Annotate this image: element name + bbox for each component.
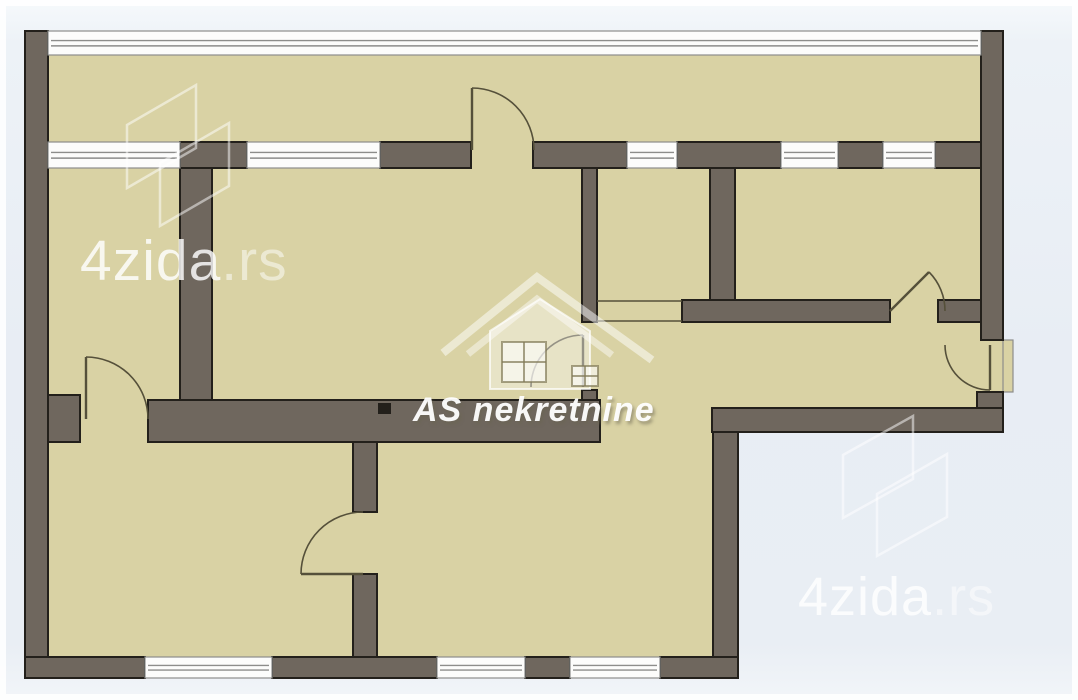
window-bottom-center-a-frame	[437, 657, 525, 678]
balcony-glazing	[48, 31, 981, 55]
wall-wing-divider-s	[353, 574, 377, 657]
window-bedroom-b	[883, 142, 935, 168]
window-living-frame	[247, 142, 380, 168]
wall-kitchen-west	[582, 168, 597, 322]
wall-hall-north-a	[682, 300, 890, 322]
balcony-glazing-frame	[48, 31, 981, 55]
window-bottom-left	[145, 657, 272, 678]
outer-wall-east	[981, 31, 1003, 340]
window-bedroom-a	[781, 142, 838, 168]
wall-wing-east	[713, 432, 738, 678]
window-living	[247, 142, 380, 168]
wall-mid-main	[148, 400, 600, 442]
wall-south-a	[25, 657, 145, 678]
floorplan-svg	[0, 0, 1078, 700]
window-bedroom-b-frame	[883, 142, 935, 168]
band-wall-b	[380, 142, 471, 168]
floorplan-image: 4zida.rs AS nekretnine 4zida.rs	[0, 0, 1078, 700]
wall-kitchen-east	[710, 168, 735, 300]
window-bottom-left-frame	[145, 657, 272, 678]
bottom-wing	[25, 432, 738, 678]
wall-south-b	[272, 657, 437, 678]
wall-wing-divider-n	[353, 442, 377, 512]
window-bottom-center-b	[570, 657, 660, 678]
wall-hall-south	[712, 408, 1003, 432]
wall-south-c	[525, 657, 570, 678]
window-kitchen-frame	[627, 142, 677, 168]
outer-wall-west	[25, 31, 48, 678]
wall-dot	[378, 403, 391, 414]
window-bottom-center-a	[437, 657, 525, 678]
wall-mid-stub-left	[48, 395, 80, 442]
window-bedroom-a-frame	[781, 142, 838, 168]
wall-south-d	[660, 657, 738, 678]
band-wall-d	[677, 142, 781, 168]
band-wall-e	[838, 142, 883, 168]
window-kitchen	[627, 142, 677, 168]
logo-4zida-bottom-right	[843, 416, 947, 556]
entry-landing	[1003, 340, 1013, 392]
band-wall-c	[533, 142, 627, 168]
band-wall-f	[935, 142, 981, 168]
window-bottom-center-b-frame	[570, 657, 660, 678]
